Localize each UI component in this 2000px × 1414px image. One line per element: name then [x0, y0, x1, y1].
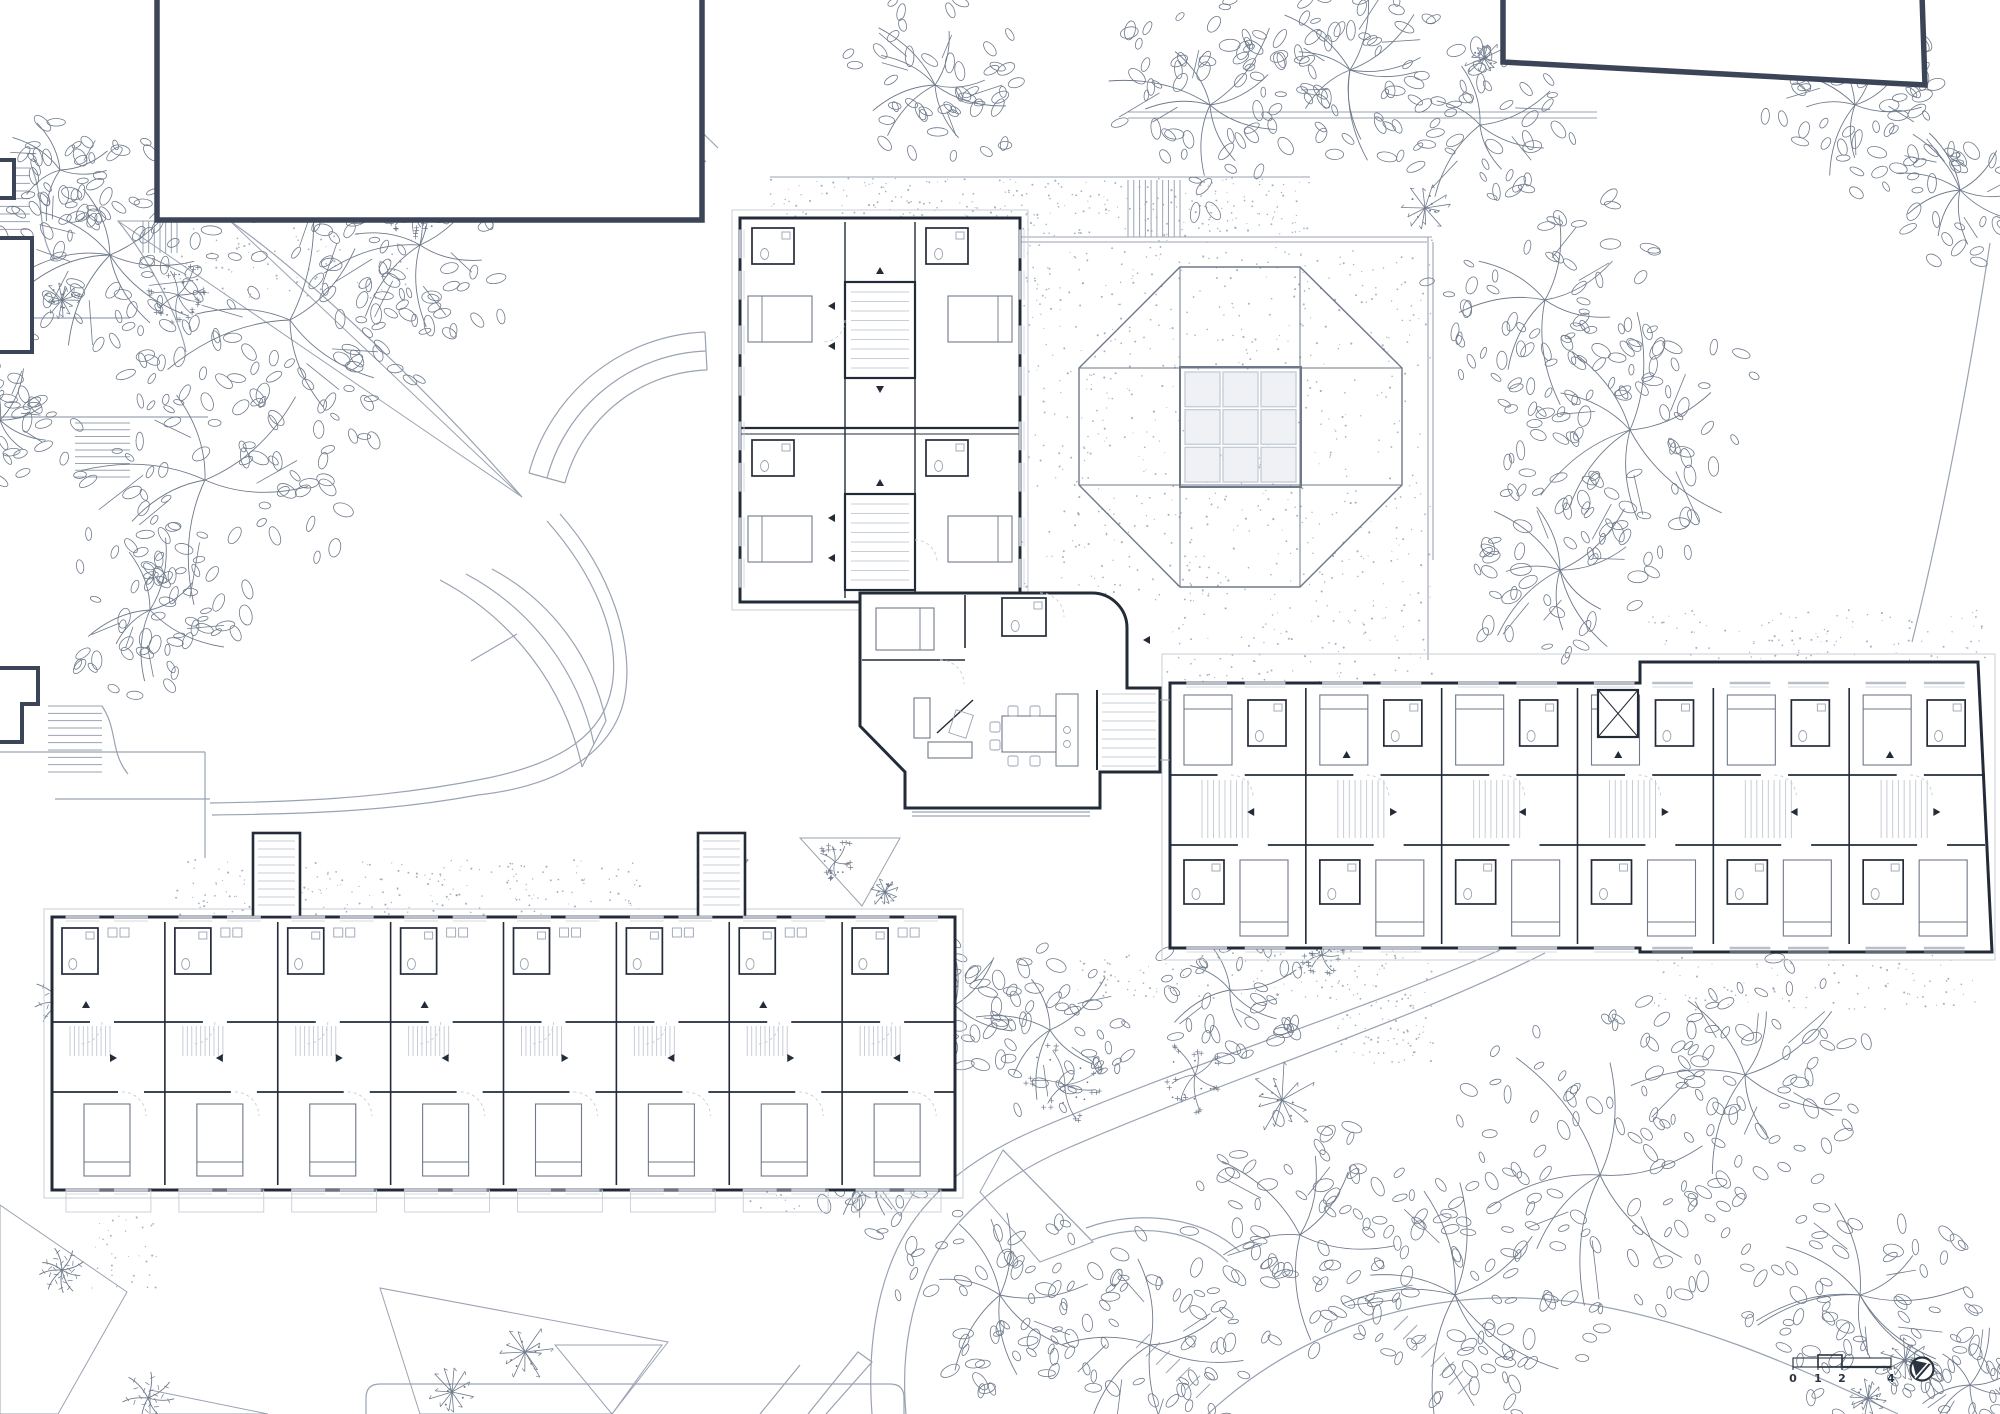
- scale-label: 4: [1887, 1372, 1895, 1385]
- dining-table: [1002, 716, 1056, 752]
- exterior-stair: [48, 706, 102, 772]
- tree-leafy: [1419, 174, 1661, 428]
- bathroom: [1791, 700, 1829, 746]
- building-north: [732, 210, 1028, 610]
- bathroom: [1927, 700, 1965, 746]
- tree-palm: [39, 1248, 83, 1293]
- bed: [197, 1104, 243, 1176]
- scale-label: 1: [1814, 1372, 1822, 1385]
- gravel-patch: [175, 859, 641, 916]
- bed: [748, 296, 812, 342]
- gravel-patch: [1654, 955, 1976, 1011]
- bed: [761, 1104, 807, 1176]
- planting-bed: [150, 1390, 268, 1414]
- bed: [1320, 695, 1368, 765]
- bed: [1863, 695, 1911, 765]
- existing-building-fragment: [0, 238, 32, 352]
- tree-leafy: [841, 0, 1025, 162]
- bathroom: [1592, 860, 1632, 904]
- bathroom: [175, 928, 211, 974]
- scale-label: 2: [1838, 1372, 1846, 1385]
- site-plan-page: { "meta": { "canvas_width": 2000, "canva…: [0, 0, 2000, 1414]
- site-path: [212, 514, 627, 815]
- site-path: [547, 351, 706, 478]
- tree-flower: [819, 840, 853, 881]
- bathroom: [626, 928, 662, 974]
- bed: [1919, 860, 1967, 936]
- planting-bed: [0, 1205, 127, 1414]
- bathroom: [1248, 700, 1286, 746]
- existing-building: [157, 0, 702, 220]
- bed: [1727, 695, 1775, 765]
- tree-leafy: [1311, 1166, 1602, 1414]
- bathroom: [926, 228, 968, 264]
- site-path: [565, 370, 707, 483]
- site-path: [118, 221, 186, 352]
- bed: [948, 516, 1012, 562]
- tree-leafy: [0, 356, 57, 489]
- site-path: [30, 240, 130, 318]
- site-path: [1092, 1231, 1228, 1262]
- tree-flower: [1165, 1044, 1221, 1115]
- tree-leafy: [1740, 1202, 1980, 1414]
- balcony: [743, 1190, 828, 1212]
- floor-plan-canvas: 0124: [0, 0, 2000, 1414]
- skylight-panel: [1223, 447, 1258, 482]
- bathroom: [1384, 700, 1422, 746]
- tree-leafy: [58, 328, 355, 633]
- existing-building-fragment: [0, 668, 38, 742]
- stair-tower: [253, 833, 300, 917]
- gravel-patch: [1648, 609, 1985, 660]
- skylight-panel: [1185, 447, 1220, 482]
- bathroom: [739, 928, 775, 974]
- bed: [874, 1104, 920, 1176]
- scale-label: 0: [1789, 1372, 1797, 1385]
- skylight-panel: [1185, 372, 1220, 407]
- bed: [1456, 695, 1504, 765]
- site-path: [760, 1365, 800, 1414]
- bed: [876, 608, 934, 650]
- bed: [310, 1104, 356, 1176]
- bed: [748, 516, 812, 562]
- site-path: [582, 721, 606, 767]
- bathroom: [1727, 860, 1767, 904]
- bed: [1783, 860, 1831, 936]
- tree-leafy: [1473, 468, 1663, 665]
- bathroom: [752, 228, 794, 264]
- site-path: [102, 706, 128, 774]
- tree-leafy: [1891, 1304, 2000, 1414]
- tree-flower: [146, 264, 207, 325]
- balcony: [405, 1190, 490, 1212]
- site-path: [1912, 243, 1990, 642]
- building-east: [1162, 654, 1995, 960]
- bed: [648, 1104, 694, 1176]
- tree-leafy: [1242, 0, 1441, 163]
- balcony: [66, 1190, 151, 1212]
- bathroom: [852, 928, 888, 974]
- bed: [1240, 860, 1288, 936]
- bed: [1184, 695, 1232, 765]
- planting-bed: [980, 1150, 1093, 1262]
- tree-leafy: [1896, 126, 2000, 269]
- bathroom: [1456, 860, 1496, 904]
- tree-shrub: [429, 1368, 474, 1412]
- balcony: [179, 1190, 264, 1212]
- stair-tower: [698, 833, 745, 917]
- tree-shrub: [1401, 185, 1450, 229]
- balcony: [518, 1190, 603, 1212]
- skylight-panel: [1261, 410, 1296, 445]
- bathroom: [926, 440, 968, 476]
- tree-shrub: [1255, 1062, 1314, 1130]
- balcony: [630, 1190, 715, 1212]
- skylight-panel: [1223, 410, 1258, 445]
- bed: [84, 1104, 130, 1176]
- tree-shrub: [500, 1329, 554, 1378]
- tree-shrub: [1850, 1379, 1887, 1414]
- skylight-panel: [1261, 447, 1296, 482]
- exterior-stair: [1128, 180, 1180, 237]
- bed: [948, 296, 1012, 342]
- gravel-patch: [1335, 950, 1434, 1064]
- bathroom: [752, 440, 794, 476]
- tree-leafy: [894, 1210, 1106, 1398]
- bathroom: [1863, 860, 1903, 904]
- skylight-panel: [1185, 410, 1220, 445]
- site-path: [905, 953, 1545, 1414]
- direction-arrow: [1143, 636, 1150, 644]
- tree-leafy: [1631, 953, 1873, 1200]
- balcony: [856, 1190, 941, 1212]
- site-path: [471, 634, 517, 661]
- bathroom: [1184, 860, 1224, 904]
- site-path: [529, 473, 565, 483]
- bathroom: [1320, 860, 1360, 904]
- bathroom: [1520, 700, 1558, 746]
- existing-building-fragment: [0, 160, 14, 198]
- gravel-patch: [180, 227, 412, 298]
- building-community-wing: [860, 593, 1170, 808]
- existing-building: [1503, 0, 1925, 85]
- bathroom: [514, 928, 550, 974]
- bed: [1648, 860, 1696, 936]
- bathroom: [62, 928, 98, 974]
- skylight-panel: [1261, 372, 1296, 407]
- skylight-panel: [1223, 372, 1258, 407]
- bathroom: [401, 928, 437, 974]
- balcony: [292, 1190, 377, 1212]
- building-south: [44, 833, 963, 1212]
- bathroom: [1656, 700, 1694, 746]
- bathroom: [1002, 598, 1046, 636]
- tree-leafy: [970, 941, 1137, 1118]
- site-path: [466, 574, 594, 744]
- gravel-patch: [91, 1216, 157, 1289]
- site-path: [440, 580, 582, 767]
- bed: [536, 1104, 582, 1176]
- site-path: [808, 1352, 872, 1414]
- site-plan-drawing: 0124: [0, 0, 2000, 1414]
- bed: [1376, 860, 1424, 936]
- site-path: [210, 521, 614, 803]
- bathroom: [288, 928, 324, 974]
- bed: [1512, 860, 1560, 936]
- tree-leafy: [1188, 1109, 1427, 1361]
- exterior-stair: [143, 221, 177, 253]
- planting-bed: [555, 1345, 662, 1414]
- bed: [423, 1104, 469, 1176]
